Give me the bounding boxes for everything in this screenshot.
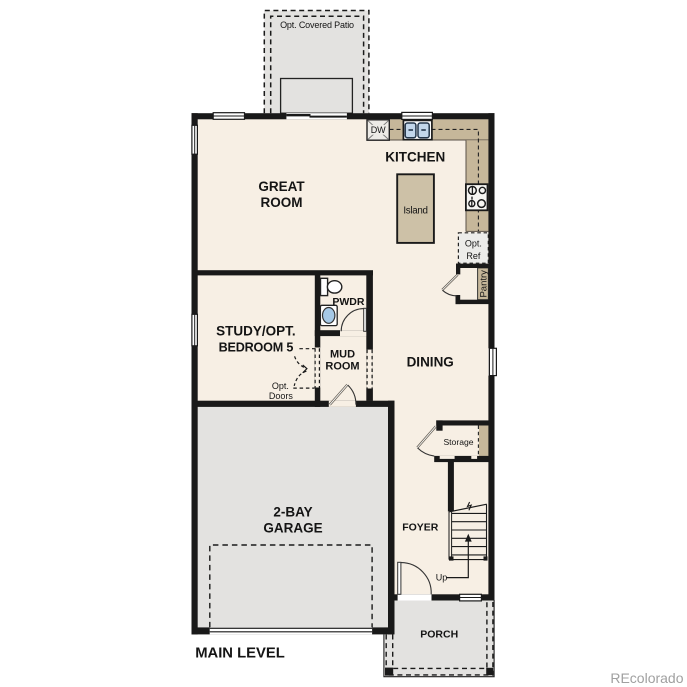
svg-text:PWDR: PWDR: [332, 296, 364, 308]
svg-text:Up: Up: [436, 573, 448, 583]
svg-text:Opt.: Opt.: [465, 238, 482, 248]
svg-text:GREAT: GREAT: [258, 179, 305, 194]
svg-text:STUDY/OPT.: STUDY/OPT.: [216, 324, 296, 339]
svg-text:Opt. Covered Patio: Opt. Covered Patio: [280, 20, 354, 30]
svg-text:Ref: Ref: [466, 251, 481, 261]
svg-text:FOYER: FOYER: [402, 522, 439, 534]
svg-text:DINING: DINING: [407, 354, 454, 369]
svg-text:MAIN LEVEL: MAIN LEVEL: [195, 645, 285, 661]
svg-text:Storage: Storage: [443, 437, 473, 447]
svg-text:BEDROOM 5: BEDROOM 5: [219, 341, 294, 355]
svg-text:MUD: MUD: [330, 349, 355, 361]
svg-text:ROOM: ROOM: [325, 361, 359, 373]
svg-text:DW: DW: [371, 125, 386, 135]
svg-text:GARAGE: GARAGE: [263, 521, 322, 536]
svg-text:Opt.: Opt.: [272, 381, 289, 391]
svg-text:Doors: Doors: [269, 391, 294, 401]
svg-text:ROOM: ROOM: [261, 195, 303, 210]
svg-text:Island: Island: [403, 205, 427, 216]
svg-text:KITCHEN: KITCHEN: [385, 149, 445, 164]
svg-text:PORCH: PORCH: [420, 628, 458, 640]
svg-text:2-BAY: 2-BAY: [273, 505, 312, 520]
svg-text:Pantry: Pantry: [478, 270, 489, 298]
svg-text:REcolorado: REcolorado: [610, 670, 683, 686]
